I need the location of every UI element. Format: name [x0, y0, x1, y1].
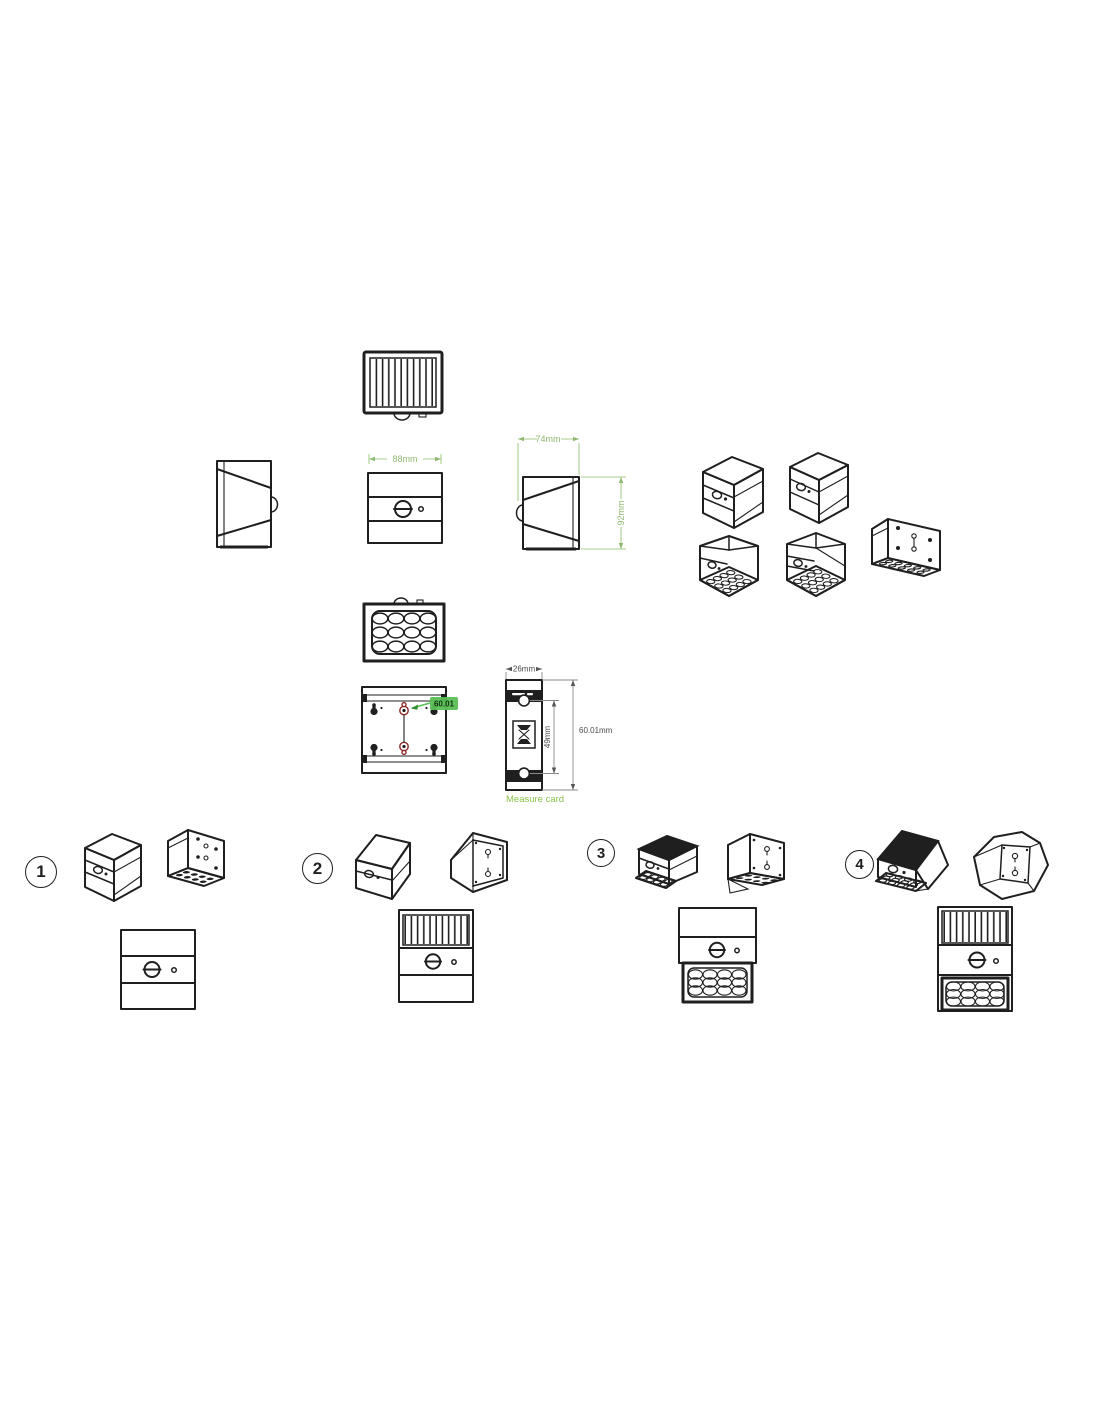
corner-keyhole-icon: [370, 744, 382, 756]
solar-top-face: [639, 836, 697, 860]
keyhole-slot-icon: [896, 546, 900, 550]
mounting-back-plate: [1000, 845, 1030, 883]
led-lens-face: [168, 868, 224, 886]
iso-view-bottom-a: [697, 534, 761, 616]
left-side-view: [214, 458, 274, 550]
pir-sensor-icon: [969, 953, 986, 968]
card-hole-bottom: [519, 768, 530, 779]
center-keyhole-icon: [400, 703, 408, 715]
model-3-front-view: [676, 906, 760, 1006]
hole-spacing-annotation: 60.01: [411, 697, 458, 710]
measure-card-caption: Measure card: [506, 794, 564, 805]
indicator-dot: [419, 507, 424, 512]
pir-sensor-icon: [888, 865, 898, 874]
model-1-front-view: [118, 927, 198, 1011]
front-width-dim-label: 88mm: [392, 454, 417, 464]
indicator-dot: [657, 867, 660, 870]
model-3-iso-front: [636, 832, 702, 904]
solar-panel-stripes: [943, 912, 1007, 942]
keyhole-slot-icon: [765, 865, 770, 870]
pir-sensor-icon: [645, 861, 654, 869]
card-length-dim-label: 60.01mm: [579, 726, 613, 735]
mounting-back-plate: [188, 830, 224, 878]
keyhole-slot-icon: [896, 526, 900, 530]
solar-roof-face: [356, 835, 410, 869]
bottom-view: [361, 595, 447, 667]
model-4-iso-back: [972, 829, 1052, 903]
model-4-front-view: [935, 903, 1015, 1015]
indicator-dot: [808, 490, 811, 493]
model-2-front-view: [396, 906, 476, 1006]
solar-roof-face: [878, 831, 938, 870]
solar-panel-stripes: [371, 359, 435, 406]
back-view: 60.01: [359, 684, 463, 776]
iso-view-top-a: [700, 452, 766, 532]
solar-top-face: [85, 834, 141, 860]
indicator-dot: [377, 876, 380, 879]
corner-keyhole-icon: [425, 744, 437, 756]
solar-top-face: [790, 453, 848, 480]
keyhole-slot-icon: [204, 856, 208, 860]
iso-view-bottom-b: [784, 530, 848, 614]
led-grid: [372, 613, 436, 652]
indicator-dot: [724, 497, 727, 500]
card-width-dim-label: 26mm: [513, 665, 536, 674]
pir-sensor-icon: [709, 943, 725, 957]
keyhole-slot-icon: [196, 837, 200, 841]
keyhole-slot-icon: [214, 847, 218, 851]
model-1-number: 1: [36, 862, 45, 882]
indicator-dot: [172, 968, 177, 973]
keyhole-slot-icon: [486, 850, 491, 855]
corner-keyhole-icon: [370, 703, 382, 715]
indicator-dot: [994, 959, 999, 964]
keyhole-slot-icon: [765, 847, 770, 852]
measure-card: 26mm 49mm 60.01mm Measure card: [496, 660, 636, 806]
keyhole-slot-icon: [928, 558, 932, 562]
led-grid: [705, 570, 753, 594]
model-2-iso-front: [354, 829, 418, 903]
keyhole-slot-icon: [486, 872, 491, 877]
led-grid: [947, 982, 1005, 1006]
right-side-view: 74mm 92mm: [517, 427, 629, 561]
side-depth-dim-label: 74mm: [535, 434, 560, 444]
card-hole-spacing-dim-label: 49mm: [543, 726, 552, 749]
model-1-number-badge: 1: [25, 856, 57, 888]
pir-sensor-icon: [793, 559, 803, 567]
led-grid: [792, 569, 840, 594]
model-2-number: 2: [313, 859, 322, 879]
mounting-back-plate: [750, 834, 784, 879]
keyhole-slot-icon: [204, 844, 208, 848]
model-4-iso-front: [876, 825, 960, 909]
indicator-dot: [805, 565, 808, 568]
model-1-iso-front: [82, 829, 144, 903]
pir-sensor-icon: [394, 501, 412, 517]
solar-top-face: [703, 457, 763, 485]
model-3-iso-back: [720, 829, 792, 901]
model-3-number-badge: 3: [587, 839, 615, 867]
model-3-number: 3: [597, 845, 605, 862]
iso-view-top-b: [788, 449, 850, 529]
keyhole-slot-icon: [928, 538, 932, 542]
keyhole-slot-icon: [1012, 853, 1017, 858]
pir-sensor-icon: [707, 561, 716, 569]
led-grid: [174, 871, 215, 884]
model-4-number-badge: 4: [845, 850, 874, 879]
led-grid: [689, 970, 747, 995]
indicator-dot: [105, 873, 108, 876]
keyhole-slot-icon: [196, 855, 200, 859]
indicator-dot: [452, 960, 456, 964]
indicator-dot: [735, 948, 739, 952]
pir-sensor-icon: [796, 483, 806, 492]
iso-view-back: [866, 516, 946, 590]
card-hole-top: [519, 695, 530, 706]
model-2-iso-back: [447, 826, 515, 900]
indicator-dot: [902, 871, 905, 874]
solar-panel-stripes: [404, 916, 468, 944]
indicator-dot: [718, 567, 721, 570]
model-2-number-badge: 2: [302, 853, 333, 884]
top-view: [361, 348, 445, 428]
annotation-arrow-icon: [411, 705, 418, 710]
side-height-dim-label: 92mm: [616, 500, 626, 525]
back-annotation-label: 60.01: [434, 700, 455, 709]
front-view: 88mm: [365, 449, 445, 547]
model-4-number: 4: [855, 856, 863, 873]
pir-sensor-icon: [144, 962, 161, 977]
model-1-iso-back: [160, 826, 230, 902]
diagram-canvas: 88mm 74mm 92mm: [0, 0, 1100, 1422]
keyhole-slot-icon: [214, 866, 218, 870]
mounting-back-plate: [473, 840, 503, 886]
keyhole-slot-icon: [1012, 870, 1017, 875]
pir-sensor-icon: [425, 954, 441, 968]
card-logo: [513, 721, 535, 748]
center-keyhole-icon: [400, 742, 408, 754]
